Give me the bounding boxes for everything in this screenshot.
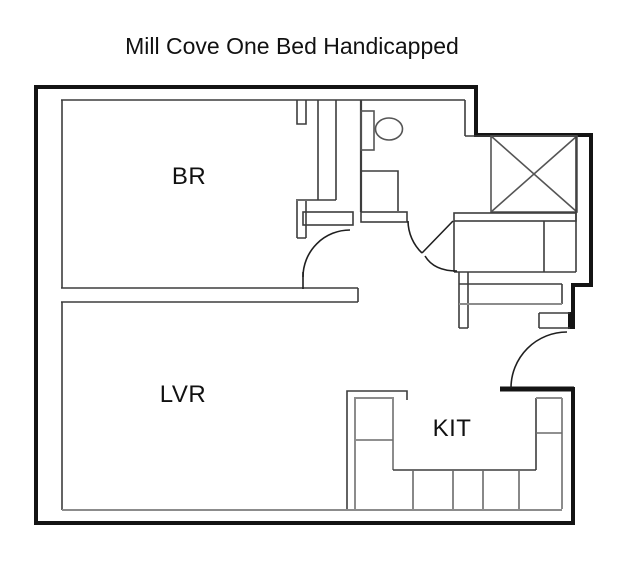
bedroom-label: BR	[172, 163, 206, 190]
sink-vanity	[361, 171, 398, 211]
bedroom-door-jamb-stub	[297, 201, 306, 238]
top-wall-notch	[297, 100, 306, 124]
bedroom-right-wall-band	[296, 100, 336, 200]
wall-shelf-middle	[361, 212, 407, 222]
entry-wall-stub	[459, 272, 468, 328]
living-room-label: LVR	[160, 381, 206, 408]
entry-door	[511, 332, 567, 388]
outer-wall-right-bottom	[34, 387, 573, 523]
bedroom-living-wall	[61, 288, 358, 302]
bathroom-door-arc-2	[425, 256, 457, 271]
kitchen-counter-left-inner	[355, 398, 393, 509]
bathroom-door	[408, 221, 457, 271]
toilet-icon	[361, 111, 403, 150]
bedroom: BR	[61, 100, 465, 302]
kitchen-counter-right-inner	[536, 398, 562, 509]
kitchen-label: KIT	[433, 415, 472, 442]
toilet-tank	[361, 111, 374, 150]
kitchen: KIT	[347, 391, 562, 509]
crossed-box-shaft	[491, 136, 577, 212]
entry-shelf	[459, 284, 562, 304]
kitchen-cabinet-dividers	[413, 470, 519, 509]
bedroom-door	[303, 230, 350, 289]
floor-plan-svg: Mill Cove One Bed Handicapped BR	[0, 0, 624, 561]
bathroom-door-arc	[408, 221, 422, 253]
closet-header-band	[454, 213, 576, 221]
bedroom-door-arc	[303, 230, 350, 277]
hall-closets	[454, 136, 576, 328]
plan-title: Mill Cove One Bed Handicapped	[125, 33, 459, 59]
floor-plan-page: Mill Cove One Bed Handicapped BR	[0, 0, 624, 561]
bathroom	[303, 100, 491, 225]
entry-door-arc	[511, 332, 567, 388]
wall-shelf-left	[303, 212, 353, 225]
shaft-x-diagonals	[491, 136, 577, 212]
toilet-bowl	[376, 118, 403, 140]
entry-door-leaf-open	[539, 313, 570, 328]
living-room: LVR	[62, 302, 562, 510]
bathroom-door-leaf	[422, 221, 453, 253]
